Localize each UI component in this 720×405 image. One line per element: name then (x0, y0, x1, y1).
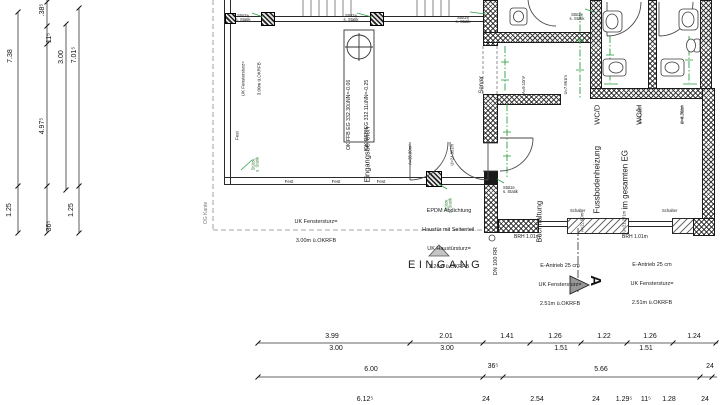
dim-b1-5: 1.26 (630, 333, 670, 341)
schalter-label-2: Schalter (662, 209, 677, 214)
dim-b2-3: 24 (690, 363, 720, 371)
dim-b1b-2: 1.51 (541, 345, 581, 353)
dim-left-365: 36⁵ (46, 213, 54, 239)
schalter-label-1: Schalter (570, 209, 585, 214)
dim-b1-6: 1.24 (674, 333, 714, 341)
stuetze-label-3: Stützes. Statik (450, 6, 476, 35)
brh-label-2: BRH 1.01m (622, 235, 648, 241)
dim-left-738: 7.38 (7, 43, 15, 69)
room-label-eingangsbereich: Eingangsbereich A=35.80m² U=24.951m (326, 115, 491, 195)
dim-b2-2: 5.66 (581, 366, 621, 374)
eantrieb-note-2: E-Antrieb 25 cm UK Fenstersturz= 2.51m ü… (612, 249, 692, 318)
dim-b3-1: 24 (466, 396, 506, 404)
dim-b3-0: 6.12⁵ (345, 396, 385, 404)
dim-b1b-0: 3.00 (316, 345, 356, 353)
dim-left-385: .38⁵ (39, 0, 47, 23)
stuetze-label-1: Stützes. Statik (230, 4, 256, 33)
dim-left-125a: 1.25 (6, 197, 14, 223)
fenstersturz-left-label: UK Fenstersturz= 3.00m ü.OKRFB (230, 49, 271, 109)
dim-b1-0: 3.99 (312, 333, 352, 341)
fest-label-left: Fest (234, 128, 239, 144)
dim-b1-1: 2.01 (426, 333, 466, 341)
dim-b1b-1: 3.00 (427, 345, 467, 353)
dim-b3-2: 2.54 (517, 396, 557, 404)
dim-b2-0: 6.00 (351, 366, 391, 374)
dim-b2-1: 36⁵ (473, 363, 513, 371)
rainpipe-label: DN 100 RR (493, 233, 499, 289)
stuetze-label-2: Stützes. Statik (338, 4, 364, 33)
brh-label-1: BRH 1.01m (514, 235, 540, 241)
fest-label-1: Fest (281, 179, 297, 184)
dim-left-4975: 4.97⁵ (39, 113, 47, 139)
og-kante-label: OG Kante (204, 196, 210, 230)
dim-b1b-3: 1.51 (626, 345, 666, 353)
dim-b1-4: 1.22 (584, 333, 624, 341)
stuetze-label-7: Stützes. Statik (242, 151, 271, 177)
dim-b1-3: 1.26 (535, 333, 575, 341)
section-letter: A (587, 275, 604, 286)
fenstersturz-bottom-note: UK Fenstersturz= 3.00m ü.OKRFB (271, 206, 361, 257)
stuetze-label-4: Stützes. Statik (564, 3, 590, 32)
mullion-ticks (303, 0, 449, 16)
floor-plan-canvas: 7.38 .38⁵ 11⁵ 3.00 7.01⁵ 4.97⁵ 36⁵ 1.25 … (0, 0, 720, 405)
dim-left-125b: 1.25 (68, 197, 76, 223)
dim-left-7015: 7.01⁵ (71, 42, 79, 68)
entrance-label: EINGANG (408, 259, 483, 272)
dim-b1-2: 1.41 (487, 333, 527, 341)
room-label-wch: WC/H A=4.70m² U=8.361m (598, 93, 720, 137)
heating-note: Fussbodenheizung im gesamten EG (574, 141, 648, 219)
dim-left-115: 11⁵ (46, 25, 54, 51)
dim-b3-7: 24 (685, 396, 720, 404)
dim-left-300: 3.00 (58, 44, 66, 70)
dim-b3-6: 1.28 (649, 396, 689, 404)
